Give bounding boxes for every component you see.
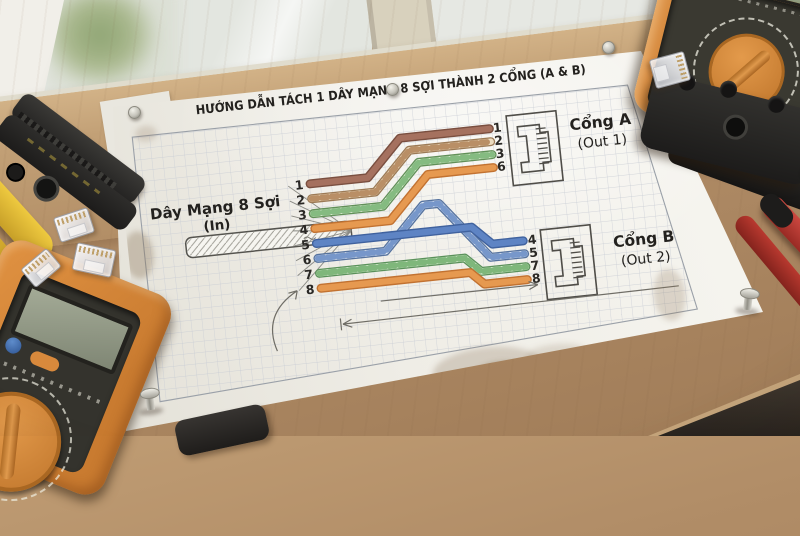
rj45-gold-pins <box>78 246 113 259</box>
push-pin-top-center <box>386 83 399 96</box>
rj45-notch <box>82 259 105 274</box>
rj45-notch <box>653 64 671 83</box>
svg-text:4: 4 <box>299 222 310 238</box>
multimeter-dial-knob <box>0 403 21 480</box>
svg-text:6: 6 <box>302 252 313 268</box>
crimper-bump <box>718 79 739 100</box>
stripper-stop-knob <box>4 161 27 184</box>
push-pin-bottom-right <box>737 287 760 317</box>
svg-text:8: 8 <box>305 281 315 297</box>
svg-text:6: 6 <box>496 158 507 174</box>
multimeter-blue-button <box>3 335 24 356</box>
multimeter-orange-button <box>28 349 61 373</box>
push-pin-top-right <box>602 41 615 54</box>
input-sublabel: (In) <box>203 216 232 235</box>
pin-head <box>739 287 760 300</box>
crimper-bump <box>766 94 787 115</box>
svg-text:1: 1 <box>294 177 304 193</box>
svg-text:7: 7 <box>303 267 313 283</box>
svg-text:3: 3 <box>297 207 307 223</box>
pin-head <box>139 387 160 401</box>
push-pin-top-left <box>128 106 141 119</box>
push-pin-bottom-left <box>138 387 162 418</box>
svg-text:2: 2 <box>296 192 306 208</box>
svg-text:5: 5 <box>300 237 310 253</box>
